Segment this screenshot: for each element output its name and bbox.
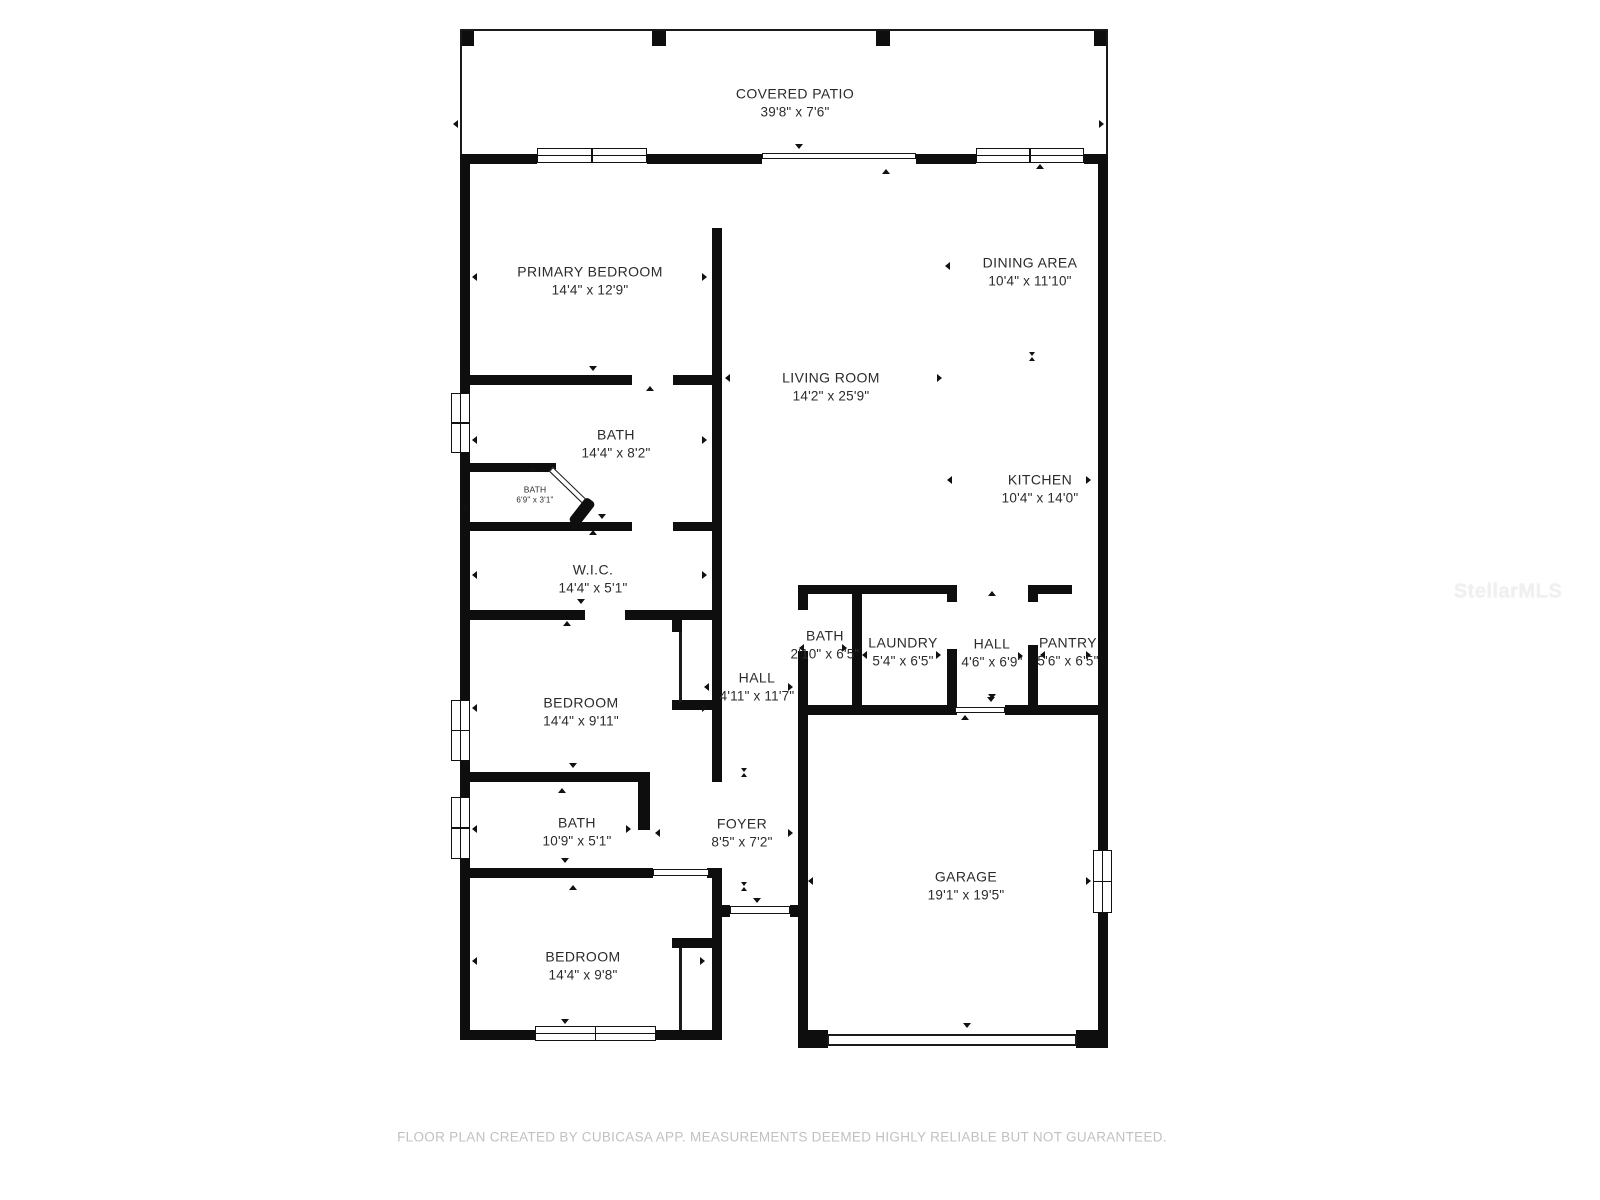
- wall: [876, 29, 890, 46]
- window: [451, 393, 470, 453]
- wall: [460, 463, 556, 472]
- dimension-arrow: [598, 514, 606, 519]
- wall: [460, 772, 638, 782]
- disclaimer-text: FLOOR PLAN CREATED BY CUBICASA APP. MEAS…: [397, 1130, 1167, 1145]
- room-label-water-closet: BATH6'9" x 3'1": [516, 484, 553, 505]
- room-label-foyer: FOYER8'5" x 7'2": [711, 815, 772, 850]
- room-label-primary-bedroom: PRIMARY BEDROOM14'4" x 12'9": [517, 263, 663, 298]
- room-label-bath-hall: BATH2'10" x 6'5": [791, 627, 860, 662]
- thin-line: [679, 632, 682, 702]
- dimension-arrow: [862, 651, 867, 659]
- dimension-arrow: [561, 858, 569, 863]
- thin-line: [827, 1034, 829, 1046]
- window-mullion: [460, 394, 462, 452]
- door-opening: [653, 869, 709, 876]
- wall: [460, 522, 632, 531]
- dimension-arrow: [753, 898, 761, 903]
- dimension-arrow: [558, 788, 566, 793]
- wall: [460, 29, 474, 46]
- door-opening: [955, 707, 1005, 713]
- dimension-arrow: [626, 825, 631, 833]
- wall: [712, 868, 722, 1040]
- dimension-arrow: [529, 466, 537, 471]
- dimension-arrow: [462, 504, 467, 512]
- dimension-arrow: [949, 652, 954, 660]
- wall: [460, 375, 632, 385]
- thin-line: [679, 948, 682, 1030]
- thin-line: [827, 1044, 1077, 1046]
- dimension-arrow: [788, 829, 793, 837]
- dimension-arrow: [569, 885, 577, 890]
- dimension-arrow: [569, 763, 577, 768]
- dimension-arrow: [1086, 476, 1091, 484]
- dimension-arrow: [945, 262, 950, 270]
- dimension-arrow: [704, 683, 709, 691]
- window: [451, 797, 470, 859]
- dimension-arrow: [882, 169, 890, 174]
- thin-line: [1106, 29, 1108, 155]
- wall: [672, 938, 722, 948]
- wall: [1028, 593, 1038, 602]
- thin-line: [460, 29, 1108, 31]
- door-opening: [730, 906, 790, 914]
- wall: [460, 868, 653, 878]
- wall: [947, 593, 957, 602]
- window: [451, 700, 470, 761]
- window-mullion: [1102, 851, 1104, 912]
- window-mullion: [460, 701, 462, 760]
- dimension-arrow: [808, 877, 813, 885]
- wall: [798, 705, 955, 715]
- dimension-arrow: [472, 273, 477, 281]
- window: [976, 148, 1084, 163]
- wall: [672, 610, 682, 632]
- room-label-primary-bath: BATH14'4" x 8'2": [582, 426, 651, 461]
- window: [537, 148, 647, 163]
- dimension-arrow: [963, 1023, 971, 1028]
- dimension-arrow: [961, 715, 969, 720]
- room-label-bedroom-bottom: BEDROOM14'4" x 9'8": [545, 948, 620, 983]
- dimension-arrow: [725, 374, 730, 382]
- dimension-arrow: [987, 697, 995, 702]
- dimension-arrow: [589, 530, 597, 535]
- wall: [652, 29, 666, 46]
- room-label-bath-guest: BATH10'9" x 5'1": [543, 814, 612, 849]
- dimension-arrow: [947, 476, 952, 484]
- dimension-arrow: [702, 571, 707, 579]
- wall: [460, 1030, 535, 1040]
- room-label-dining-area: DINING AREA10'4" x 11'10": [983, 254, 1078, 289]
- window-mullion: [595, 1027, 597, 1040]
- dimension-arrow: [472, 571, 477, 579]
- room-label-wic: W.I.C.14'4" x 5'1": [559, 561, 628, 596]
- dimension-arrow: [937, 374, 942, 382]
- dimension-arrow: [589, 366, 597, 371]
- window-mullion: [591, 149, 593, 162]
- dimension-arrow: [988, 591, 996, 596]
- window: [535, 1026, 656, 1041]
- room-label-laundry: LAUNDRY5'4" x 6'5": [868, 634, 937, 669]
- dimension-arrow: [472, 957, 477, 965]
- room-label-covered-patio: COVERED PATIO39'8" x 7'6": [736, 85, 854, 120]
- dimension-arrow: [472, 704, 477, 712]
- room-label-garage: GARAGE19'1" x 19'5": [928, 868, 1005, 903]
- dimension-arrow: [655, 829, 660, 837]
- ceiling-break-mark: [740, 768, 748, 777]
- dimension-arrow: [1086, 877, 1091, 885]
- dimension-arrow: [577, 599, 585, 604]
- room-label-hall-small: HALL4'6" x 6'9": [961, 635, 1022, 670]
- dimension-arrow: [702, 704, 707, 712]
- door-opening: [762, 153, 916, 159]
- dimension-arrow: [453, 120, 458, 128]
- watermark: StellarMLS: [1454, 581, 1562, 604]
- window: [1093, 850, 1112, 913]
- dimension-arrow: [1099, 120, 1104, 128]
- dimension-arrow: [702, 436, 707, 444]
- dimension-arrow: [472, 436, 477, 444]
- room-label-pantry: PANTRY5'6" x 6'5": [1037, 634, 1098, 669]
- room-label-kitchen: KITCHEN10'4" x 14'0": [1002, 471, 1079, 506]
- dimension-arrow: [795, 144, 803, 149]
- wall: [647, 154, 762, 164]
- wall: [798, 585, 957, 594]
- room-label-living-room: LIVING ROOM14'2" x 25'9": [782, 369, 880, 404]
- window-mullion: [1029, 149, 1031, 162]
- wall: [916, 154, 976, 164]
- wall: [712, 905, 730, 917]
- wall: [460, 154, 537, 164]
- dimension-arrow: [700, 957, 705, 965]
- wall: [798, 585, 808, 610]
- dimension-arrow: [561, 1019, 569, 1024]
- wall: [1076, 1030, 1108, 1048]
- wall: [1005, 705, 1108, 715]
- dimension-arrow: [472, 825, 477, 833]
- room-label-bedroom-middle: BEDROOM14'4" x 9'11": [543, 694, 619, 729]
- wall: [638, 772, 650, 830]
- ceiling-break-mark: [740, 882, 748, 891]
- dimension-arrow: [1036, 164, 1044, 169]
- window-mullion: [460, 798, 462, 858]
- wall: [1098, 154, 1108, 1048]
- ceiling-break-mark: [1028, 352, 1036, 361]
- wall: [798, 705, 808, 1048]
- floor-plan-canvas: COVERED PATIO39'8" x 7'6" PRIMARY BEDROO…: [0, 0, 1600, 1200]
- dimension-arrow: [702, 273, 707, 281]
- thin-line: [1075, 1034, 1077, 1046]
- dimension-arrow: [563, 621, 571, 626]
- thin-line: [460, 29, 462, 155]
- room-label-hall-long: HALL4'11" x 11'7": [720, 669, 795, 704]
- thin-line: [827, 1034, 1077, 1036]
- wall: [460, 610, 585, 620]
- wall: [460, 154, 470, 1040]
- dimension-arrow: [646, 386, 654, 391]
